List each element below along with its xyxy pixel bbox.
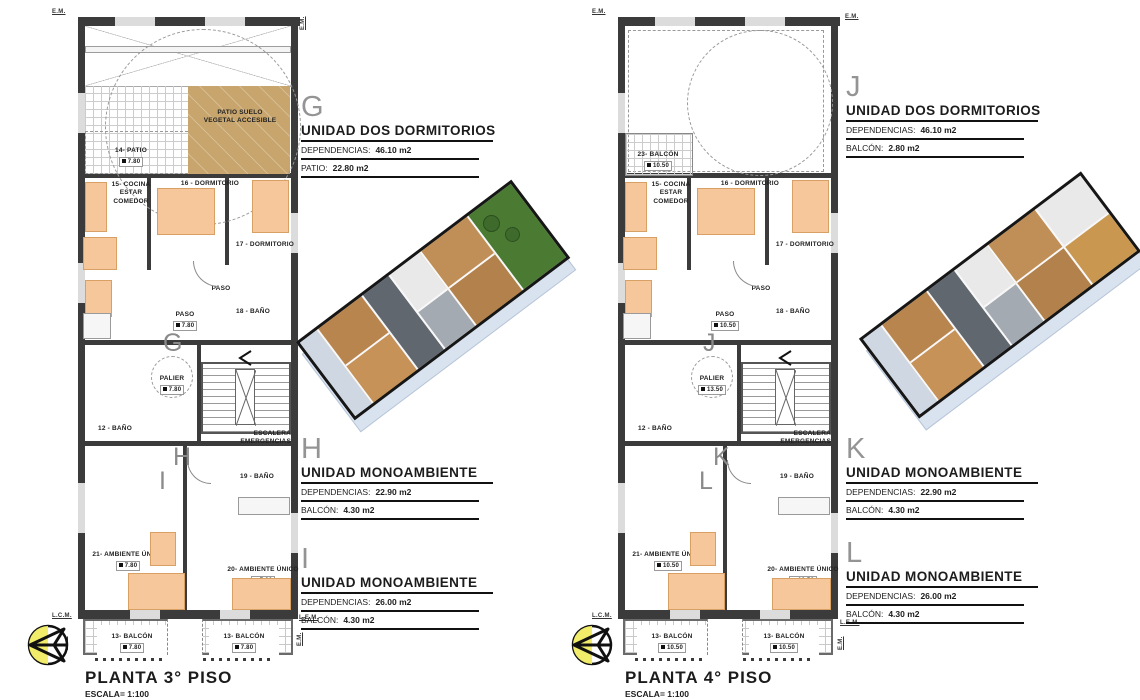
unit-row-label: DEPENDENCIAS: [846,487,915,497]
bed [232,578,291,610]
bed [668,573,725,610]
room-label-text: 14- PATIO [115,147,147,154]
area-value: 7.80 [169,387,181,393]
area-square-icon [122,159,126,163]
room-label-text: PASO [176,311,195,318]
tree-icon [483,215,500,232]
unit-name: UNIDAD MONOAMBIENTE [301,575,493,594]
floor-plan-4th-floor: 23- BALCÓN 10.50 15- COCINA ESTAR COMEDO… [615,13,843,661]
room-label-text: 20- AMBIENTE ÚNICO [227,566,298,573]
area-chip: 10.50 [654,561,682,571]
bed [792,180,829,233]
unit-row-value: 22.90 m2 [920,487,956,497]
area-value: 10.50 [667,645,683,651]
kitchen-counter [778,497,830,515]
area-square-icon [235,645,239,649]
stair-cross-icon [776,370,796,426]
unit-row-label: DEPENDENCIAS: [846,125,915,135]
room-label-18-bano: 18 - BAÑO [227,308,279,316]
wall [625,340,831,345]
unit-info-I: I UNIDAD MONOAMBIENTE DEPENDENCIAS:26.00… [301,545,493,630]
plan-unit-letter-L: L [699,469,713,494]
unit-row-label: DEPENDENCIAS: [301,597,370,607]
radius-dashed-circle [687,30,833,176]
room-label-18-bano: 18 - BAÑO [767,308,819,316]
window [205,17,245,26]
unit-name: UNIDAD MONOAMBIENTE [846,569,1038,588]
room-label-17-dormitorio: 17 - DORMITORIO [773,241,837,249]
room-label-23-balcon: 23- BALCÓN 10.50 [627,143,689,179]
edge-label: E.M. [297,632,303,646]
unit-name: UNIDAD DOS DORMITORIOS [846,103,1038,122]
area-chip: 10.50 [644,161,672,171]
wall [618,17,840,26]
window [618,93,625,133]
unit-letter: I [301,545,493,574]
unit-row-label: BALCÓN: [301,615,338,625]
tree-icon [505,227,520,242]
area-square-icon [123,645,127,649]
edge-label: E.M. [300,16,306,30]
plan-scale: ESCALA= 1:100 [85,689,232,699]
window [115,17,155,26]
room-label-13-balcon: 13- BALCÓN 7.80 [209,625,279,661]
room-label-text: 20- AMBIENTE ÚNICO [767,566,838,573]
north-arrow-compass [570,623,614,667]
area-chip: 7.80 [120,643,144,653]
area-value: 10.50 [779,645,795,651]
edge-label: E.M. [838,636,844,650]
sofa [625,182,647,232]
area-chip: 13.50 [698,385,726,395]
section-cut-marker-icon [237,349,255,367]
area-value: 7.80 [125,563,137,569]
balcony-divider [167,619,203,655]
area-value: 10.50 [663,563,679,569]
unit-row-value: 46.10 m2 [375,145,411,155]
unit-row-value: 22.80 m2 [333,163,369,173]
bed [128,573,185,610]
room-label-escalera: ESCALERA EMERGENCIAS [225,430,291,447]
unit-row-value: 4.30 m2 [343,615,374,625]
plan-title: PLANTA 4° PISO [625,668,772,688]
kitchen-counter [238,497,290,515]
unit-row-value: 46.10 m2 [920,125,956,135]
title-block-left: PLANTA 3° PISO ESCALA= 1:100 [85,668,232,699]
area-chip: 7.80 [116,561,140,571]
window [78,483,85,533]
room-label-19-bano: 19 - BAÑO [771,473,823,481]
unit-row-label: DEPENDENCIAS: [301,145,370,155]
sofa [85,182,107,232]
unit-letter: H [301,435,493,464]
unit-letter: K [846,435,1038,464]
table [690,532,716,566]
wall [618,610,838,619]
area-square-icon [119,563,123,567]
window [831,513,838,553]
door-swing [727,460,751,484]
room-label-text: PALIER [700,375,725,382]
kitchen-counter [623,313,651,339]
area-square-icon [176,323,180,327]
room-label-text: 23- BALCÓN [637,151,678,158]
stair-landing [775,369,795,425]
window [618,483,625,533]
area-chip: 7.80 [119,157,143,167]
bed [772,578,831,610]
wall [78,17,300,26]
dimension-ticks [743,658,815,661]
area-square-icon [657,563,661,567]
plan-unit-letter-G: G [163,331,182,356]
door-swing [187,460,211,484]
room-label-patio-suelo: PATIO SUELO VEGETAL ACCESIBLE [201,109,279,126]
room-label-text: 13- BALCÓN [763,633,804,640]
area-value: 7.80 [241,645,253,651]
room-label-13-balcon: 13- BALCÓN 10.50 [637,625,707,661]
room-label-12-bano: 12 - BAÑO [631,425,679,433]
section-cut-marker-icon [777,349,795,367]
unit-name: UNIDAD MONOAMBIENTE [846,465,1038,484]
area-value: 7.80 [182,323,194,329]
north-arrow-compass [26,623,70,667]
edge-label: E.M. [592,9,606,15]
door-opening [760,610,790,619]
unit-row-value: 26.00 m2 [375,597,411,607]
unit-row-value: 26.00 m2 [920,591,956,601]
unit-row-label: PATIO: [301,163,328,173]
table [625,280,652,317]
room-label-paso: PASO [201,285,241,293]
unit-row-label: DEPENDENCIAS: [846,591,915,601]
room-label-palier: PALIER 7.80 [151,367,193,403]
door-opening [670,610,700,619]
unit-info-K: K UNIDAD MONOAMBIENTE DEPENDENCIAS:22.90… [846,435,1038,520]
room-label-14-patio: 14- PATIO 7.80 [99,139,163,175]
unit-info-J: J UNIDAD DOS DORMITORIOS DEPENDENCIAS:46… [846,73,1038,158]
room-label-text: 13- BALCÓN [111,633,152,640]
bed [252,180,289,233]
unit-info-L: L UNIDAD MONOAMBIENTE DEPENDENCIAS:26.00… [846,539,1038,624]
unit-row-value: 4.30 m2 [343,505,374,515]
unit-row-label: BALCÓN: [846,609,883,619]
kitchen-counter [83,313,111,339]
area-value: 7.80 [129,645,141,651]
room-label-13-balcon: 13- BALCÓN 10.50 [749,625,819,661]
unit-letter: J [846,73,1038,102]
dimension-ticks [95,658,167,661]
stair-landing [235,369,255,425]
unit-name: UNIDAD MONOAMBIENTE [301,465,493,484]
dining-table [83,237,117,270]
unit-row-label: DEPENDENCIAS: [301,487,370,497]
title-block-right: PLANTA 4° PISO ESCALA= 1:100 [625,668,772,699]
area-chip: 10.50 [770,643,798,653]
dimension-ticks [635,658,707,661]
plan-unit-letter-I: I [159,469,166,494]
dimension-ticks [203,658,275,661]
edge-label: L.C.M. [592,613,612,619]
window [745,17,785,26]
unit-letter: G [301,93,493,122]
area-square-icon [647,163,651,167]
window [291,513,298,553]
room-label-12-bano: 12 - BAÑO [91,425,139,433]
unit-row-value: 22.90 m2 [375,487,411,497]
window [655,17,695,26]
table [85,280,112,317]
area-square-icon [661,645,665,649]
isometric-render-4th-floor [868,183,1132,407]
plan-unit-letter-J: J [703,331,716,356]
area-square-icon [773,645,777,649]
unit-row-value: 2.80 m2 [888,143,919,153]
unit-row-value: 4.30 m2 [888,505,919,515]
stair-cross-icon [236,370,256,426]
dining-table [623,237,657,270]
window [78,93,85,133]
room-label-text: PASO [716,311,735,318]
wall [85,340,291,345]
room-label-13-balcon: 13- BALCÓN 7.80 [97,625,167,661]
drawing-sheet: PATIO SUELO VEGETAL ACCESIBLE 14- PATIO … [0,0,1140,700]
unit-info-H: H UNIDAD MONOAMBIENTE DEPENDENCIAS:22.90… [301,435,493,520]
area-square-icon [701,387,705,391]
unit-row-label: BALCÓN: [846,505,883,515]
edge-label: L.C.M. [52,613,72,619]
door-opening [220,610,250,619]
plan-scale: ESCALA= 1:100 [625,689,772,699]
door-swing [193,261,219,287]
room-label-text: 13- BALCÓN [651,633,692,640]
unit-letter: L [846,539,1038,568]
room-label-palier: PALIER 13.50 [691,367,733,403]
table [150,532,176,566]
isometric-render-3rd-floor [300,193,562,407]
area-square-icon [163,387,167,391]
area-square-icon [714,323,718,327]
unit-row-value: 4.30 m2 [888,609,919,619]
door-swing [733,261,759,287]
area-chip: 10.50 [658,643,686,653]
area-value: 10.50 [720,323,736,329]
balcony-divider [707,619,743,655]
area-value: 13.50 [707,387,723,393]
wall [78,610,298,619]
unit-name: UNIDAD DOS DORMITORIOS [301,123,493,142]
unit-row-label: BALCÓN: [846,143,883,153]
area-chip: 7.80 [160,385,184,395]
edge-label: E.M. [845,14,859,20]
area-value: 10.50 [653,163,669,169]
room-label-text: 13- BALCÓN [223,633,264,640]
plan-title: PLANTA 3° PISO [85,668,232,688]
room-label-text: PALIER [160,375,185,382]
room-label-19-bano: 19 - BAÑO [231,473,283,481]
bed [157,188,215,235]
unit-info-G: G UNIDAD DOS DORMITORIOS DEPENDENCIAS:46… [301,93,493,178]
room-label-escalera: ESCALERA EMERGENCIAS [765,430,831,447]
area-chip: 7.80 [232,643,256,653]
bed [697,188,755,235]
door-opening [130,610,160,619]
area-value: 7.80 [128,159,140,165]
unit-row-label: BALCÓN: [301,505,338,515]
room-label-17-dormitorio: 17 - DORMITORIO [233,241,297,249]
room-label-paso: PASO [741,285,781,293]
edge-label: E.M. [52,9,66,15]
floor-plan-3rd-floor: PATIO SUELO VEGETAL ACCESIBLE 14- PATIO … [75,13,303,661]
